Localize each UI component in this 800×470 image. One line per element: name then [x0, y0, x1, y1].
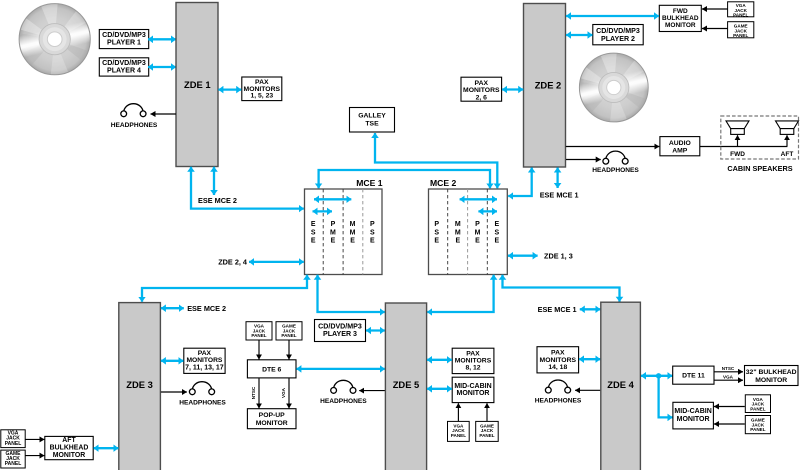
svg-text:CABIN SPEAKERS: CABIN SPEAKERS — [727, 164, 792, 173]
svg-text:AFT: AFT — [781, 151, 794, 158]
svg-text:PAX: PAX — [551, 350, 565, 357]
svg-text:AUDIO: AUDIO — [669, 140, 691, 147]
svg-text:ZDE 4: ZDE 4 — [607, 379, 634, 390]
svg-text:PANEL: PANEL — [451, 433, 466, 438]
svg-text:AMP: AMP — [672, 148, 688, 155]
svg-text:E: E — [311, 238, 316, 245]
svg-text:PAX: PAX — [475, 80, 489, 87]
svg-text:MCE 1: MCE 1 — [356, 178, 382, 188]
svg-text:E: E — [494, 221, 499, 228]
svg-text:2, 6: 2, 6 — [476, 94, 488, 101]
svg-text:M: M — [330, 229, 336, 236]
svg-text:PANEL: PANEL — [750, 406, 765, 411]
svg-text:MID-CABIN: MID-CABIN — [674, 408, 711, 415]
svg-text:MONITOR: MONITOR — [677, 416, 710, 423]
svg-text:S: S — [370, 229, 375, 236]
svg-text:14, 18: 14, 18 — [548, 364, 567, 371]
svg-text:32" BULKHEAD: 32" BULKHEAD — [746, 369, 797, 376]
svg-text:ZDE 1: ZDE 1 — [184, 79, 211, 90]
svg-text:ESE MCE 2: ESE MCE 2 — [187, 304, 226, 313]
svg-text:ZDE 2, 4: ZDE 2, 4 — [218, 258, 248, 267]
svg-text:PANEL: PANEL — [733, 33, 748, 38]
svg-text:MCE 2: MCE 2 — [430, 178, 456, 188]
svg-text:BULKHEAD: BULKHEAD — [662, 15, 699, 22]
svg-text:ZDE 2: ZDE 2 — [535, 79, 562, 90]
svg-text:MID-CABIN: MID-CABIN — [454, 383, 491, 390]
svg-text:PANEL: PANEL — [251, 333, 266, 338]
svg-text:MONITORS: MONITORS — [455, 358, 492, 365]
svg-text:E: E — [370, 238, 375, 245]
svg-text:ESE MCE 1: ESE MCE 1 — [540, 191, 579, 200]
svg-text:CD/DVD/MP3: CD/DVD/MP3 — [596, 27, 640, 35]
svg-text:PLAYER 1: PLAYER 1 — [107, 39, 141, 47]
svg-text:HEADPHONES: HEADPHONES — [179, 400, 226, 407]
svg-text:1, 5, 23: 1, 5, 23 — [250, 93, 273, 100]
svg-text:MONITOR: MONITOR — [457, 390, 490, 397]
svg-text:8, 12: 8, 12 — [465, 365, 480, 372]
svg-text:VGA: VGA — [723, 375, 734, 380]
svg-text:E: E — [434, 238, 439, 245]
svg-text:MONITORS: MONITORS — [186, 357, 222, 364]
svg-text:TSE: TSE — [365, 120, 379, 127]
svg-text:MONITOR: MONITOR — [665, 22, 696, 29]
svg-text:PANEL: PANEL — [479, 433, 494, 438]
svg-text:S: S — [311, 229, 316, 236]
svg-text:NTSC: NTSC — [722, 366, 735, 371]
svg-text:HEADPHONES: HEADPHONES — [592, 167, 639, 174]
svg-text:FWD: FWD — [730, 151, 745, 158]
svg-text:MONITOR: MONITOR — [53, 452, 85, 459]
svg-text:PANEL: PANEL — [5, 461, 22, 467]
svg-text:CD/DVD/MP3: CD/DVD/MP3 — [318, 322, 362, 330]
svg-text:S: S — [434, 229, 439, 236]
svg-text:GALLEY: GALLEY — [358, 113, 386, 120]
svg-text:ZDE 1, 3: ZDE 1, 3 — [544, 251, 573, 260]
svg-text:P: P — [331, 221, 336, 228]
svg-text:PAX: PAX — [198, 350, 212, 357]
svg-text:NTSC: NTSC — [251, 386, 256, 399]
svg-text:DTE 11: DTE 11 — [682, 373, 705, 380]
svg-text:S: S — [494, 229, 499, 236]
svg-text:MONITORS: MONITORS — [540, 357, 577, 364]
svg-text:HEADPHONES: HEADPHONES — [320, 398, 367, 405]
svg-text:M: M — [455, 229, 461, 236]
svg-text:PANEL: PANEL — [733, 12, 748, 17]
svg-text:E: E — [475, 238, 480, 245]
svg-text:ESE MCE 2: ESE MCE 2 — [198, 196, 237, 205]
svg-text:P: P — [370, 221, 375, 228]
svg-text:E: E — [494, 238, 499, 245]
svg-text:E: E — [311, 221, 316, 228]
svg-text:P: P — [475, 221, 480, 228]
svg-text:PANEL: PANEL — [5, 441, 22, 447]
svg-text:E: E — [455, 238, 460, 245]
svg-text:E: E — [331, 238, 336, 245]
svg-text:HEADPHONES: HEADPHONES — [535, 398, 582, 405]
svg-text:7, 11, 13, 17: 7, 11, 13, 17 — [185, 364, 224, 371]
svg-text:MONITOR: MONITOR — [256, 420, 288, 427]
svg-text:PLAYER 4: PLAYER 4 — [107, 67, 141, 75]
svg-text:BULKHEAD: BULKHEAD — [50, 445, 89, 452]
svg-text:E: E — [350, 238, 355, 245]
svg-text:AFT: AFT — [62, 437, 76, 444]
svg-text:PLAYER 3: PLAYER 3 — [323, 330, 357, 338]
svg-text:ZDE 3: ZDE 3 — [126, 379, 153, 390]
svg-text:POP-UP: POP-UP — [259, 412, 286, 419]
svg-text:PANEL: PANEL — [750, 427, 765, 432]
svg-text:PAX: PAX — [466, 351, 480, 358]
svg-text:M: M — [350, 229, 356, 236]
svg-text:P: P — [434, 221, 439, 228]
svg-text:MONITOR: MONITOR — [755, 377, 787, 384]
svg-text:ZDE 5: ZDE 5 — [393, 379, 420, 390]
svg-text:ESE MCE 1: ESE MCE 1 — [538, 305, 577, 314]
svg-text:PANEL: PANEL — [281, 333, 296, 338]
svg-text:PLAYER 2: PLAYER 2 — [601, 35, 635, 43]
svg-text:M: M — [475, 229, 481, 236]
svg-text:VGA: VGA — [281, 387, 286, 398]
svg-text:M: M — [455, 221, 461, 228]
svg-text:MONITORS: MONITORS — [463, 87, 500, 94]
svg-text:DTE 6: DTE 6 — [262, 366, 281, 373]
svg-text:HEADPHONES: HEADPHONES — [111, 122, 158, 129]
svg-text:M: M — [350, 221, 356, 228]
svg-text:FWD: FWD — [673, 8, 688, 15]
